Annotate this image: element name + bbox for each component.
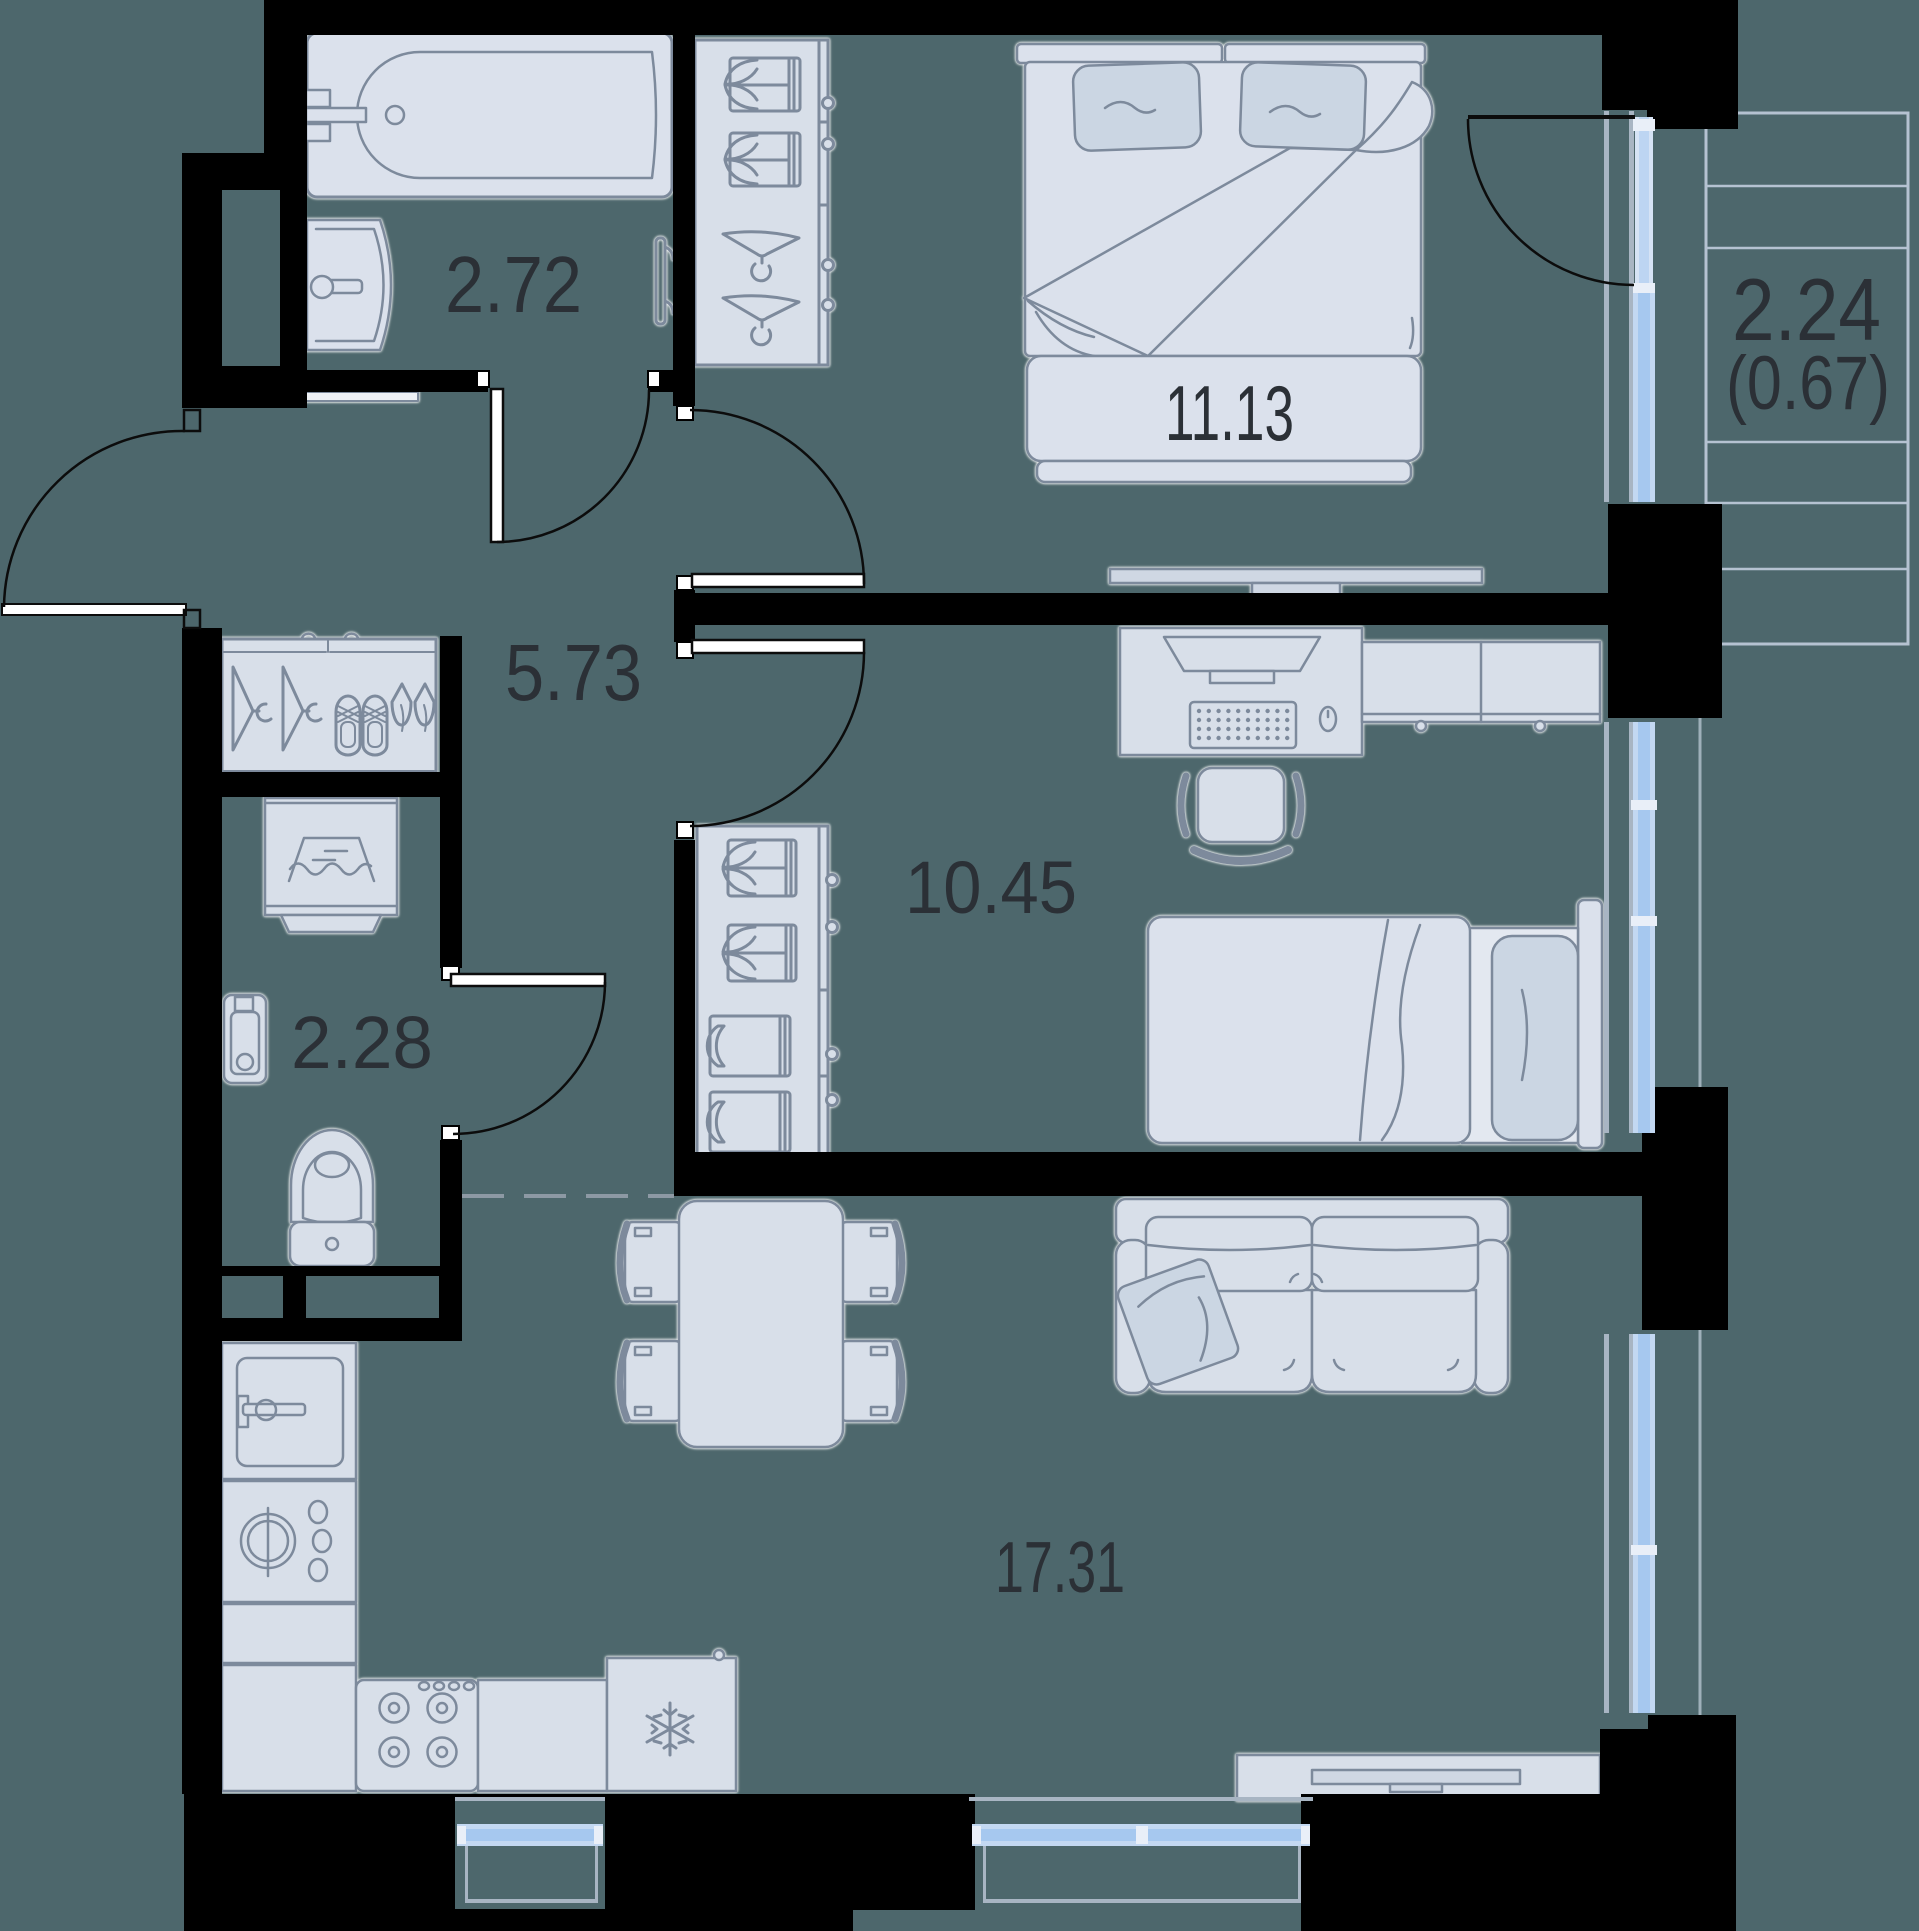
svg-text:2.72: 2.72 bbox=[445, 240, 582, 329]
svg-text:(0.67): (0.67) bbox=[1726, 341, 1890, 426]
svg-text:2.28: 2.28 bbox=[291, 1001, 433, 1084]
svg-text:11.13: 11.13 bbox=[1165, 369, 1294, 457]
svg-text:5.73: 5.73 bbox=[505, 628, 642, 717]
svg-text:17.31: 17.31 bbox=[995, 1528, 1125, 1608]
svg-text:10.45: 10.45 bbox=[905, 846, 1077, 929]
